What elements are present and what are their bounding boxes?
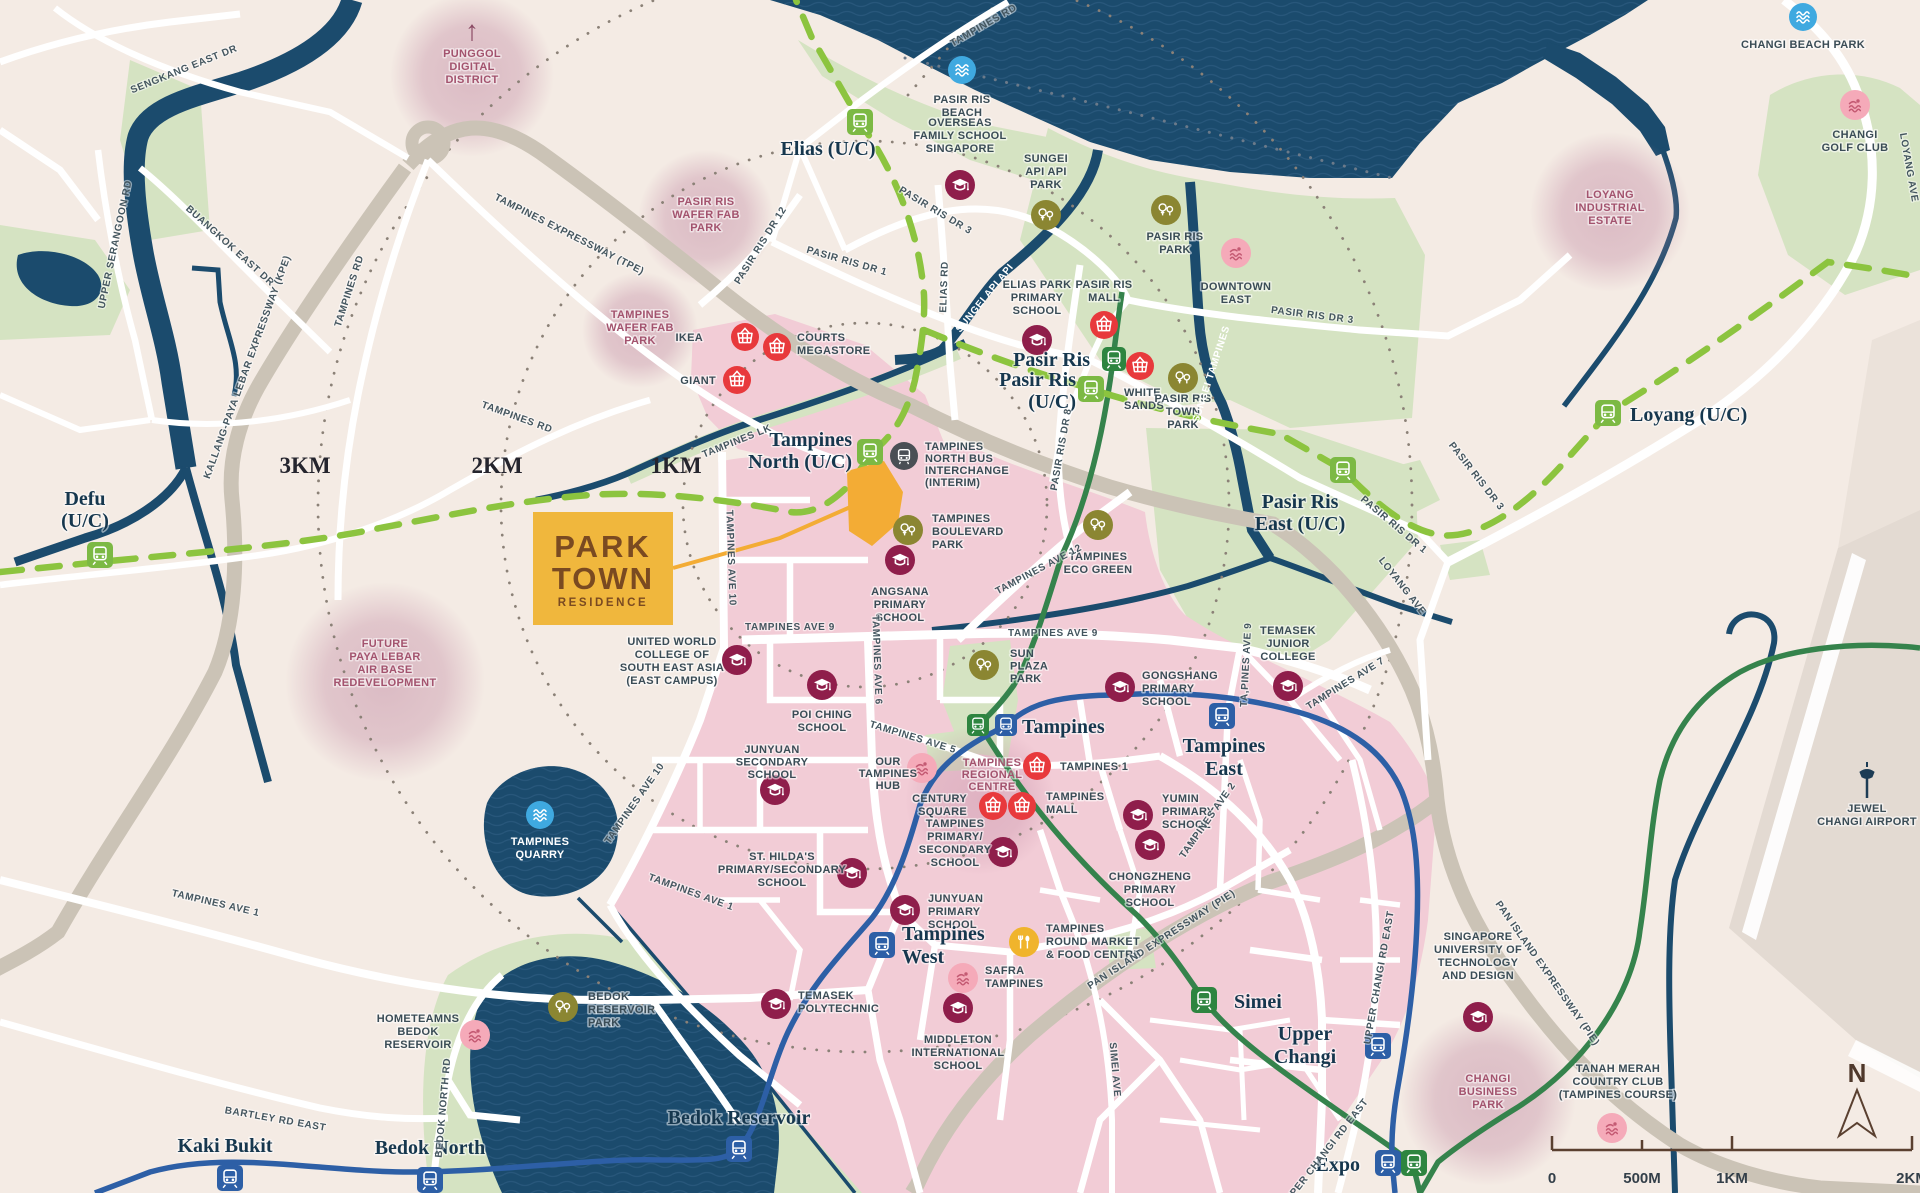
svg-text:ELIAS RD: ELIAS RD xyxy=(938,261,951,313)
svg-text:TANAH MERAHCOUNTRY CLUB(TAMPIN: TANAH MERAHCOUNTRY CLUB(TAMPINES COURSE) xyxy=(1559,1063,1678,1101)
svg-text:PARK: PARK xyxy=(554,529,652,564)
svg-text:Simei: Simei xyxy=(1234,991,1282,1013)
svg-text:2KM: 2KM xyxy=(471,453,522,478)
svg-text:SUNGEIAPI APIPARK: SUNGEIAPI APIPARK xyxy=(1024,153,1068,191)
svg-text:CENTURYSQUARE: CENTURYSQUARE xyxy=(912,793,967,818)
svg-text:PUNGGOLDIGITALDISTRICT: PUNGGOLDIGITALDISTRICT xyxy=(443,48,501,86)
svg-text:TOWN: TOWN xyxy=(552,561,654,596)
svg-text:↑: ↑ xyxy=(465,15,479,46)
svg-text:N: N xyxy=(1848,1058,1867,1088)
svg-text:Defu(U/C): Defu(U/C) xyxy=(61,488,109,532)
svg-text:Pasir RisEast (U/C): Pasir RisEast (U/C) xyxy=(1255,491,1346,535)
svg-text:2KM: 2KM xyxy=(1896,1170,1920,1187)
svg-text:TAMPINES 1: TAMPINES 1 xyxy=(1060,761,1128,773)
svg-text:3KM: 3KM xyxy=(279,453,330,478)
svg-text:1KM: 1KM xyxy=(1716,1170,1748,1187)
svg-text:500M: 500M xyxy=(1623,1170,1661,1187)
svg-text:POI CHINGSCHOOL: POI CHINGSCHOOL xyxy=(792,709,852,734)
svg-text:Loyang (U/C): Loyang (U/C) xyxy=(1630,404,1747,426)
svg-text:TAMPINES AVE 9: TAMPINES AVE 9 xyxy=(745,622,835,633)
svg-text:1KM: 1KM xyxy=(650,453,701,478)
svg-text:Tampines: Tampines xyxy=(1022,716,1105,738)
svg-text:TAMPINESREGIONALCENTRE: TAMPINESREGIONALCENTRE xyxy=(962,757,1022,793)
svg-text:Elias (U/C): Elias (U/C) xyxy=(781,138,876,160)
svg-text:Pasir Ris: Pasir Ris xyxy=(1013,349,1090,371)
svg-text:GIANT: GIANT xyxy=(680,375,716,387)
svg-text:TAMPINES AVE 9: TAMPINES AVE 9 xyxy=(1008,628,1098,639)
svg-text:RESIDENCE: RESIDENCE xyxy=(558,597,649,609)
svg-text:Bedok Reservoir: Bedok Reservoir xyxy=(668,1107,811,1129)
svg-text:SINGAPOREUNIVERSITY OFTECHNOLO: SINGAPOREUNIVERSITY OFTECHNOLOGYAND DESI… xyxy=(1434,931,1522,982)
svg-text:CHANGI BEACH PARK: CHANGI BEACH PARK xyxy=(1741,39,1865,51)
svg-text:Bedok North: Bedok North xyxy=(375,1137,486,1159)
svg-text:TEMASEKJUNIORCOLLEGE: TEMASEKJUNIORCOLLEGE xyxy=(1260,625,1316,663)
svg-text:ELIAS PARKPRIMARYSCHOOL: ELIAS PARKPRIMARYSCHOOL xyxy=(1003,279,1072,317)
svg-text:UpperChangi: UpperChangi xyxy=(1274,1023,1337,1068)
svg-text:0: 0 xyxy=(1548,1170,1556,1187)
svg-text:UNITED WORLDCOLLEGE OFSOUTH EA: UNITED WORLDCOLLEGE OFSOUTH EAST ASIA(EA… xyxy=(620,636,724,687)
svg-text:PASIR RISBEACH: PASIR RISBEACH xyxy=(934,94,991,119)
svg-text:Kaki Bukit: Kaki Bukit xyxy=(177,1135,272,1157)
svg-text:IKEA: IKEA xyxy=(676,332,703,344)
svg-text:TAMPINESQUARRY: TAMPINESQUARRY xyxy=(511,836,569,861)
